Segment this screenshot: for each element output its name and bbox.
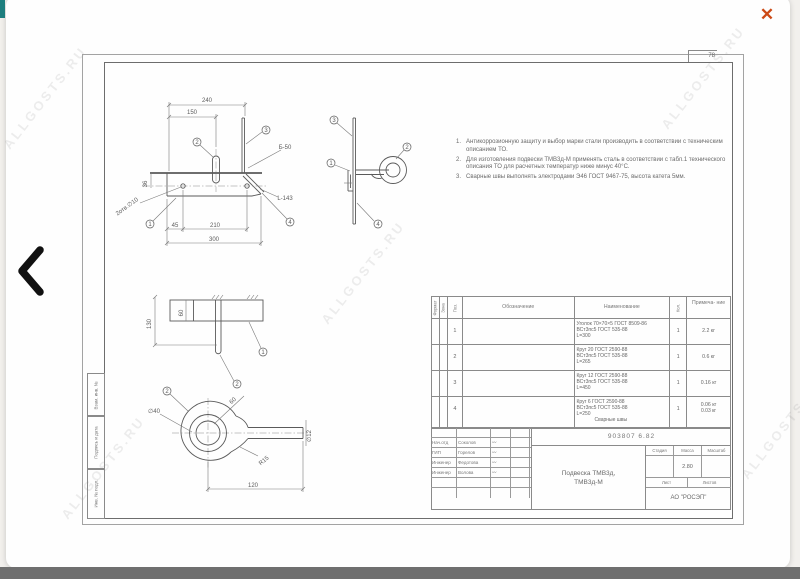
sig-date [511, 478, 530, 487]
mass-label: Масса [674, 446, 702, 455]
sig-name [457, 478, 491, 487]
stamp-meta-headers: Стадия Масса Масштаб [646, 446, 731, 456]
cell-format [432, 318, 440, 344]
title-line: ТМВ3д-М [574, 478, 603, 487]
note-text: Сварные швы выполнять электродами Э46 ГО… [466, 174, 685, 182]
note-item: 1. Антикоррозионную защиту и выбор марки… [456, 139, 744, 155]
signature-row [431, 478, 531, 488]
cell-format [432, 370, 440, 396]
sheets-label: Листов [688, 478, 731, 487]
spec-header-qty: Кол. [670, 296, 687, 318]
sig-signature: 〰 [491, 448, 511, 457]
signature-row [431, 428, 531, 438]
margin-label: Подпись и дата [94, 426, 99, 458]
sig-role [431, 478, 457, 487]
sig-date [511, 438, 530, 447]
sig-role: Нач.отд [431, 438, 457, 447]
cell-designation [463, 318, 575, 344]
company-name: АО "РОСЭП" [646, 488, 731, 509]
title-line: Подвеска ТМВ3д, [562, 469, 616, 478]
margin-label: Взам. инв. № [94, 381, 99, 409]
sig-signature: 〰 [491, 438, 511, 447]
signature-row: Инженер Федотова 〰 [431, 458, 531, 468]
cell-qty: 1 [670, 318, 687, 344]
note-number: 1. [456, 139, 466, 155]
sig-signature [491, 478, 511, 487]
signature-row: Инженер Волова 〰 [431, 468, 531, 478]
cell-pos: 4 [448, 396, 463, 427]
margin-box-inv: Инв. № подл. [87, 468, 105, 519]
cell-note: 2.2 кг [687, 318, 731, 344]
sig-role: ГИП [431, 448, 457, 457]
cell-qty: 1 [670, 344, 687, 370]
sig-name: Горелов [457, 448, 491, 457]
sig-role: Инженер [431, 458, 457, 467]
teal-corner-accent [0, 0, 5, 18]
sig-signature [491, 428, 511, 437]
spec-header-designation: Обозначение [463, 296, 575, 318]
bottom-bar [0, 567, 800, 579]
cell-pos: 1 [448, 318, 463, 344]
cell-designation [463, 370, 575, 396]
margin-box-vzam: Взам. инв. № [87, 373, 105, 417]
note-number: 3. [456, 174, 466, 182]
name-line: L=300 [577, 333, 669, 339]
name-line: L=450 [577, 385, 669, 391]
table-row: 3 Круг 12 ГОСТ 2590-88 ВСт3пс5 ГОСТ 535-… [431, 370, 731, 396]
table-row: 1 Уголок 70×70×5 ГОСТ 8509-86 ВСт3пс5 ГО… [431, 318, 731, 344]
cell-note: 0.16 кг [687, 370, 731, 396]
page-number: 78 [688, 50, 717, 62]
sheet-row: Лист Листов [646, 478, 731, 488]
cell-name: Круг 12 ГОСТ 2590-88 ВСт3пс5 ГОСТ 535-88… [575, 370, 671, 396]
sheet-label: Лист [646, 478, 688, 487]
stamp-right-zone: Стадия Масса Масштаб 2.80 Лист Листов АО… [645, 446, 731, 510]
spec-header-note: Примеча- ние [687, 296, 731, 318]
stage-value [646, 456, 674, 477]
note-item: 3. Сварные швы выполнять электродами Э46… [456, 174, 744, 182]
note-number: 2. [456, 157, 466, 173]
drawing-title: Подвеска ТМВ3д, ТМВ3д-М [531, 446, 645, 510]
doc-number: 903807 6.82 [531, 428, 731, 446]
scale-value [702, 456, 731, 477]
sig-role [431, 428, 457, 437]
note-text: Для изготовления подвески ТМВ3д-М примен… [466, 157, 744, 173]
prev-page-button[interactable] [10, 242, 50, 302]
cell-name: Круг 20 ГОСТ 2590-88 ВСт3пс5 ГОСТ 535-88… [575, 344, 671, 370]
spec-table: Формат Зона Поз. Обозначение Наименовани… [431, 296, 731, 428]
cell-zone [440, 318, 448, 344]
spec-header-row: Формат Зона Поз. Обозначение Наименовани… [431, 296, 731, 318]
cell-pos: 2 [448, 344, 463, 370]
margin-label: Инв. № подл. [94, 479, 99, 507]
spec-header-pos: Поз. [448, 296, 463, 318]
note-text: Антикоррозионную защиту и выбор марки ст… [466, 139, 744, 155]
cell-qty: 1 [670, 370, 687, 396]
cell-designation [463, 396, 575, 427]
cell-note: 0.6 кг [687, 344, 731, 370]
spec-header-name: Наименование [575, 296, 671, 318]
stamp-meta-values: 2.80 [646, 456, 731, 478]
signature-zone: Нач.отд Соколов 〰 ГИП Горелов 〰 Инженер … [431, 428, 531, 510]
cell-qty: 1 [670, 396, 687, 427]
signature-row [431, 488, 531, 498]
name-line: L=265 [577, 359, 669, 365]
close-button[interactable]: ✕ [755, 3, 779, 27]
cell-format [432, 396, 440, 427]
notes-list: 1. Антикоррозионную защиту и выбор марки… [456, 139, 744, 184]
stage-label: Стадия [646, 446, 674, 455]
sig-role: Инженер [431, 468, 457, 477]
table-row: 4 Круг 6 ГОСТ 2590-88 ВСт3пс5 ГОСТ 535-8… [431, 396, 731, 428]
sig-date [511, 488, 530, 498]
weld-seams-label: Сварные швы [577, 417, 669, 423]
sig-signature: 〰 [491, 468, 511, 477]
cell-zone [440, 396, 448, 427]
sig-name: Федотова [457, 458, 491, 467]
sig-name [457, 488, 491, 498]
sig-name [457, 428, 491, 437]
viewer-stage: ALLGOSTS.RU ALLGOSTS.RU ALLGOSTS.RU ALLG… [0, 0, 800, 579]
title-block: 903807 6.82 Нач.отд Соколов 〰 ГИП Горело… [431, 428, 731, 510]
sig-signature: 〰 [491, 458, 511, 467]
sig-date [511, 458, 530, 467]
spec-header-format: Формат [432, 296, 440, 318]
table-row: 2 Круг 20 ГОСТ 2590-88 ВСт3пс5 ГОСТ 535-… [431, 344, 731, 370]
sig-date [511, 428, 530, 437]
chevron-left-icon [10, 242, 50, 302]
note-item: 2. Для изготовления подвески ТМВ3д-М при… [456, 157, 744, 173]
cell-note: 0.06 кг 0.03 кг [687, 396, 731, 427]
mass-value: 0.06 кг [687, 397, 730, 408]
margin-box-podpis: Подпись и дата [87, 415, 105, 470]
cell-name: Уголок 70×70×5 ГОСТ 8509-86 ВСт3пс5 ГОСТ… [575, 318, 671, 344]
sig-role [431, 488, 457, 498]
sig-date [511, 448, 530, 457]
cell-zone [440, 370, 448, 396]
sig-date [511, 468, 530, 477]
cell-designation [463, 344, 575, 370]
cell-zone [440, 344, 448, 370]
sig-name: Волова [457, 468, 491, 477]
spec-header-zone: Зона [440, 296, 448, 318]
cell-pos: 3 [448, 370, 463, 396]
sig-name: Соколов [457, 438, 491, 447]
cell-format [432, 344, 440, 370]
sig-signature [491, 488, 511, 498]
signature-row: Нач.отд Соколов 〰 [431, 438, 531, 448]
cell-name: Круг 6 ГОСТ 2590-88 ВСт3пс5 ГОСТ 535-88 … [575, 396, 671, 427]
weld-mass-value: 0.03 кг [687, 408, 730, 414]
mass-value: 2.80 [674, 456, 702, 477]
signature-row: ГИП Горелов 〰 [431, 448, 531, 458]
scale-label: Масштаб [702, 446, 731, 455]
